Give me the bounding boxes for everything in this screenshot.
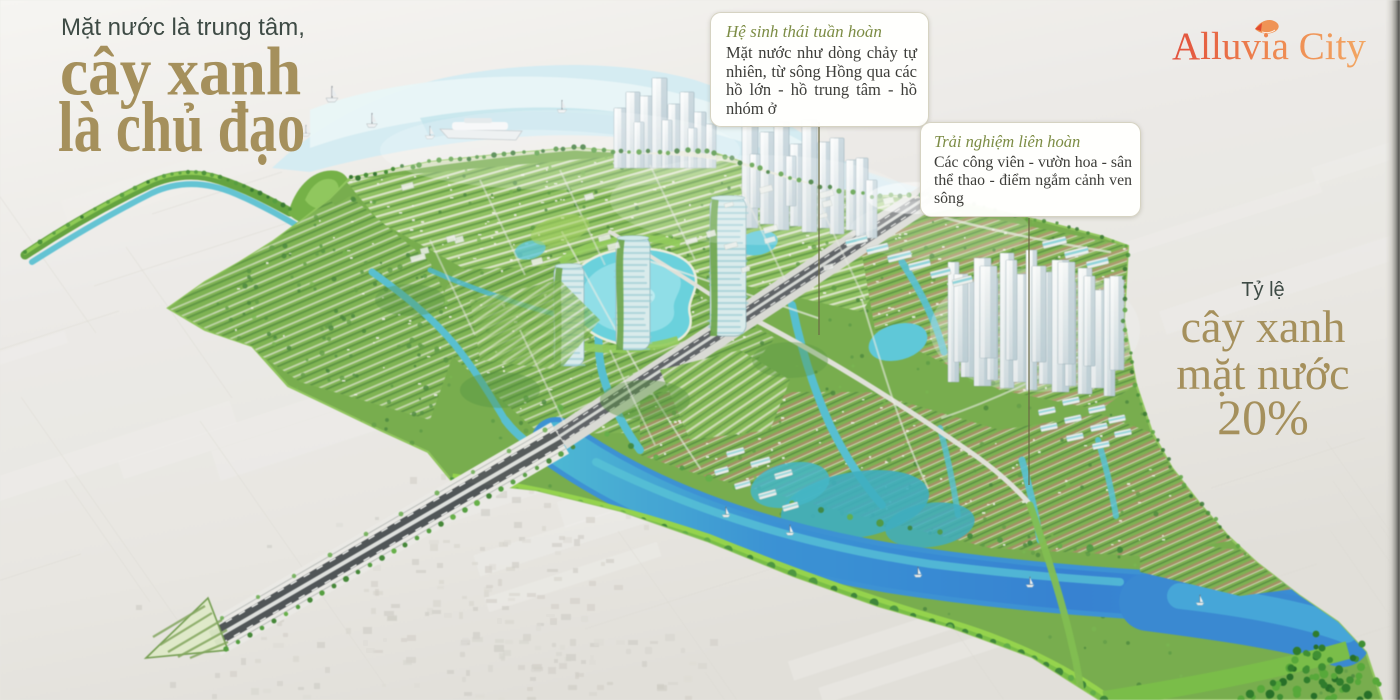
svg-text:Alluvia City: Alluvia City [1172, 25, 1366, 68]
